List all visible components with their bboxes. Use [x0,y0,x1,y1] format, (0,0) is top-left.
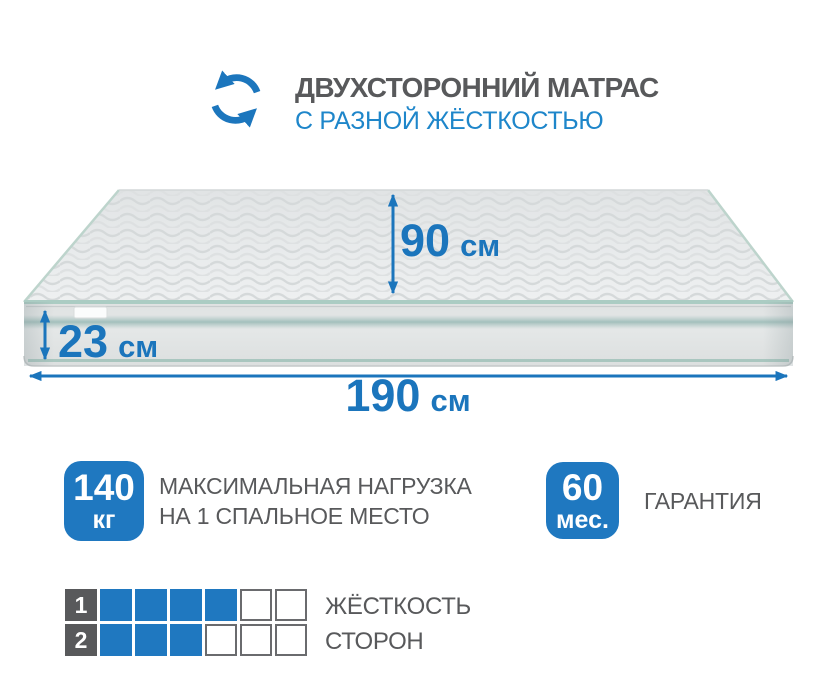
warranty-badge: 60 мес. [546,462,619,539]
left-corner-shade [24,302,54,366]
firmness-empty-square [240,589,272,621]
dimension-length-value: 190 [345,370,420,421]
max-load-badge: 140 кг [64,461,144,541]
firmness-filled-square [170,589,202,621]
dimension-width-value: 90 [400,215,450,266]
page-title: ДВУХСТОРОННИЙ МАТРАС [295,73,659,102]
firmness-filled-square [170,624,202,656]
firmness-empty-square [275,624,307,656]
firmness-filled-square [135,624,167,656]
dimension-length-unit: см [430,383,470,418]
dimension-height-value: 23 [58,316,108,367]
firmness-filled-square [135,589,167,621]
firmness-caption: ЖЁСТКОСТЬ СТОРОН [325,589,471,659]
warranty-unit: мес. [556,508,609,533]
header: ДВУХСТОРОННИЙ МАТРАС С РАЗНОЙ ЖЁСТКОСТЬЮ [295,73,659,136]
firmness-caption-line1: ЖЁСТКОСТЬ [325,589,471,624]
dimension-height: 23см [58,319,158,364]
rotate-arrows-icon [204,68,268,130]
dimension-height-unit: см [118,329,158,364]
max-load-label-line1: МАКСИМАЛЬНАЯ НАГРУЗКА [159,471,472,501]
dimension-width-unit: см [460,228,500,263]
mattress-infographic: ДВУХСТОРОННИЙ МАТРАС С РАЗНОЙ ЖЁСТКОСТЬЮ [0,0,816,700]
firmness-caption-line2: СТОРОН [325,624,471,659]
page-subtitle: С РАЗНОЙ ЖЁСТКОСТЬЮ [295,107,659,136]
firmness-empty-square [240,624,272,656]
dimension-width: 90см [400,218,500,263]
warranty-label: ГАРАНТИЯ [644,489,762,513]
max-load-value: 140 [73,469,135,506]
max-load-label: МАКСИМАЛЬНАЯ НАГРУЗКА НА 1 СПАЛЬНОЕ МЕСТ… [159,471,472,531]
firmness-filled-square [205,589,237,621]
firmness-empty-square [275,589,307,621]
warranty-value: 60 [562,469,603,506]
firmness-rows: 1 2 [65,589,307,656]
firmness-empty-square [205,624,237,656]
firmness-side1-squares [100,589,307,621]
firmness-row-side1: 1 [65,589,307,621]
firmness-filled-square [100,624,132,656]
right-corner-shade [763,302,793,366]
dimension-length: 190см [0,373,816,418]
firmness-side1-label: 1 [65,589,97,621]
firmness-filled-square [100,589,132,621]
firmness-side2-label: 2 [65,624,97,656]
max-load-label-line2: НА 1 СПАЛЬНОЕ МЕСТО [159,501,472,531]
firmness-scale: 1 2 ЖЁСТКОСТЬ СТОРОН [65,589,471,659]
firmness-row-side2: 2 [65,624,307,656]
max-load-unit: кг [93,508,116,533]
firmness-side2-squares [100,624,307,656]
